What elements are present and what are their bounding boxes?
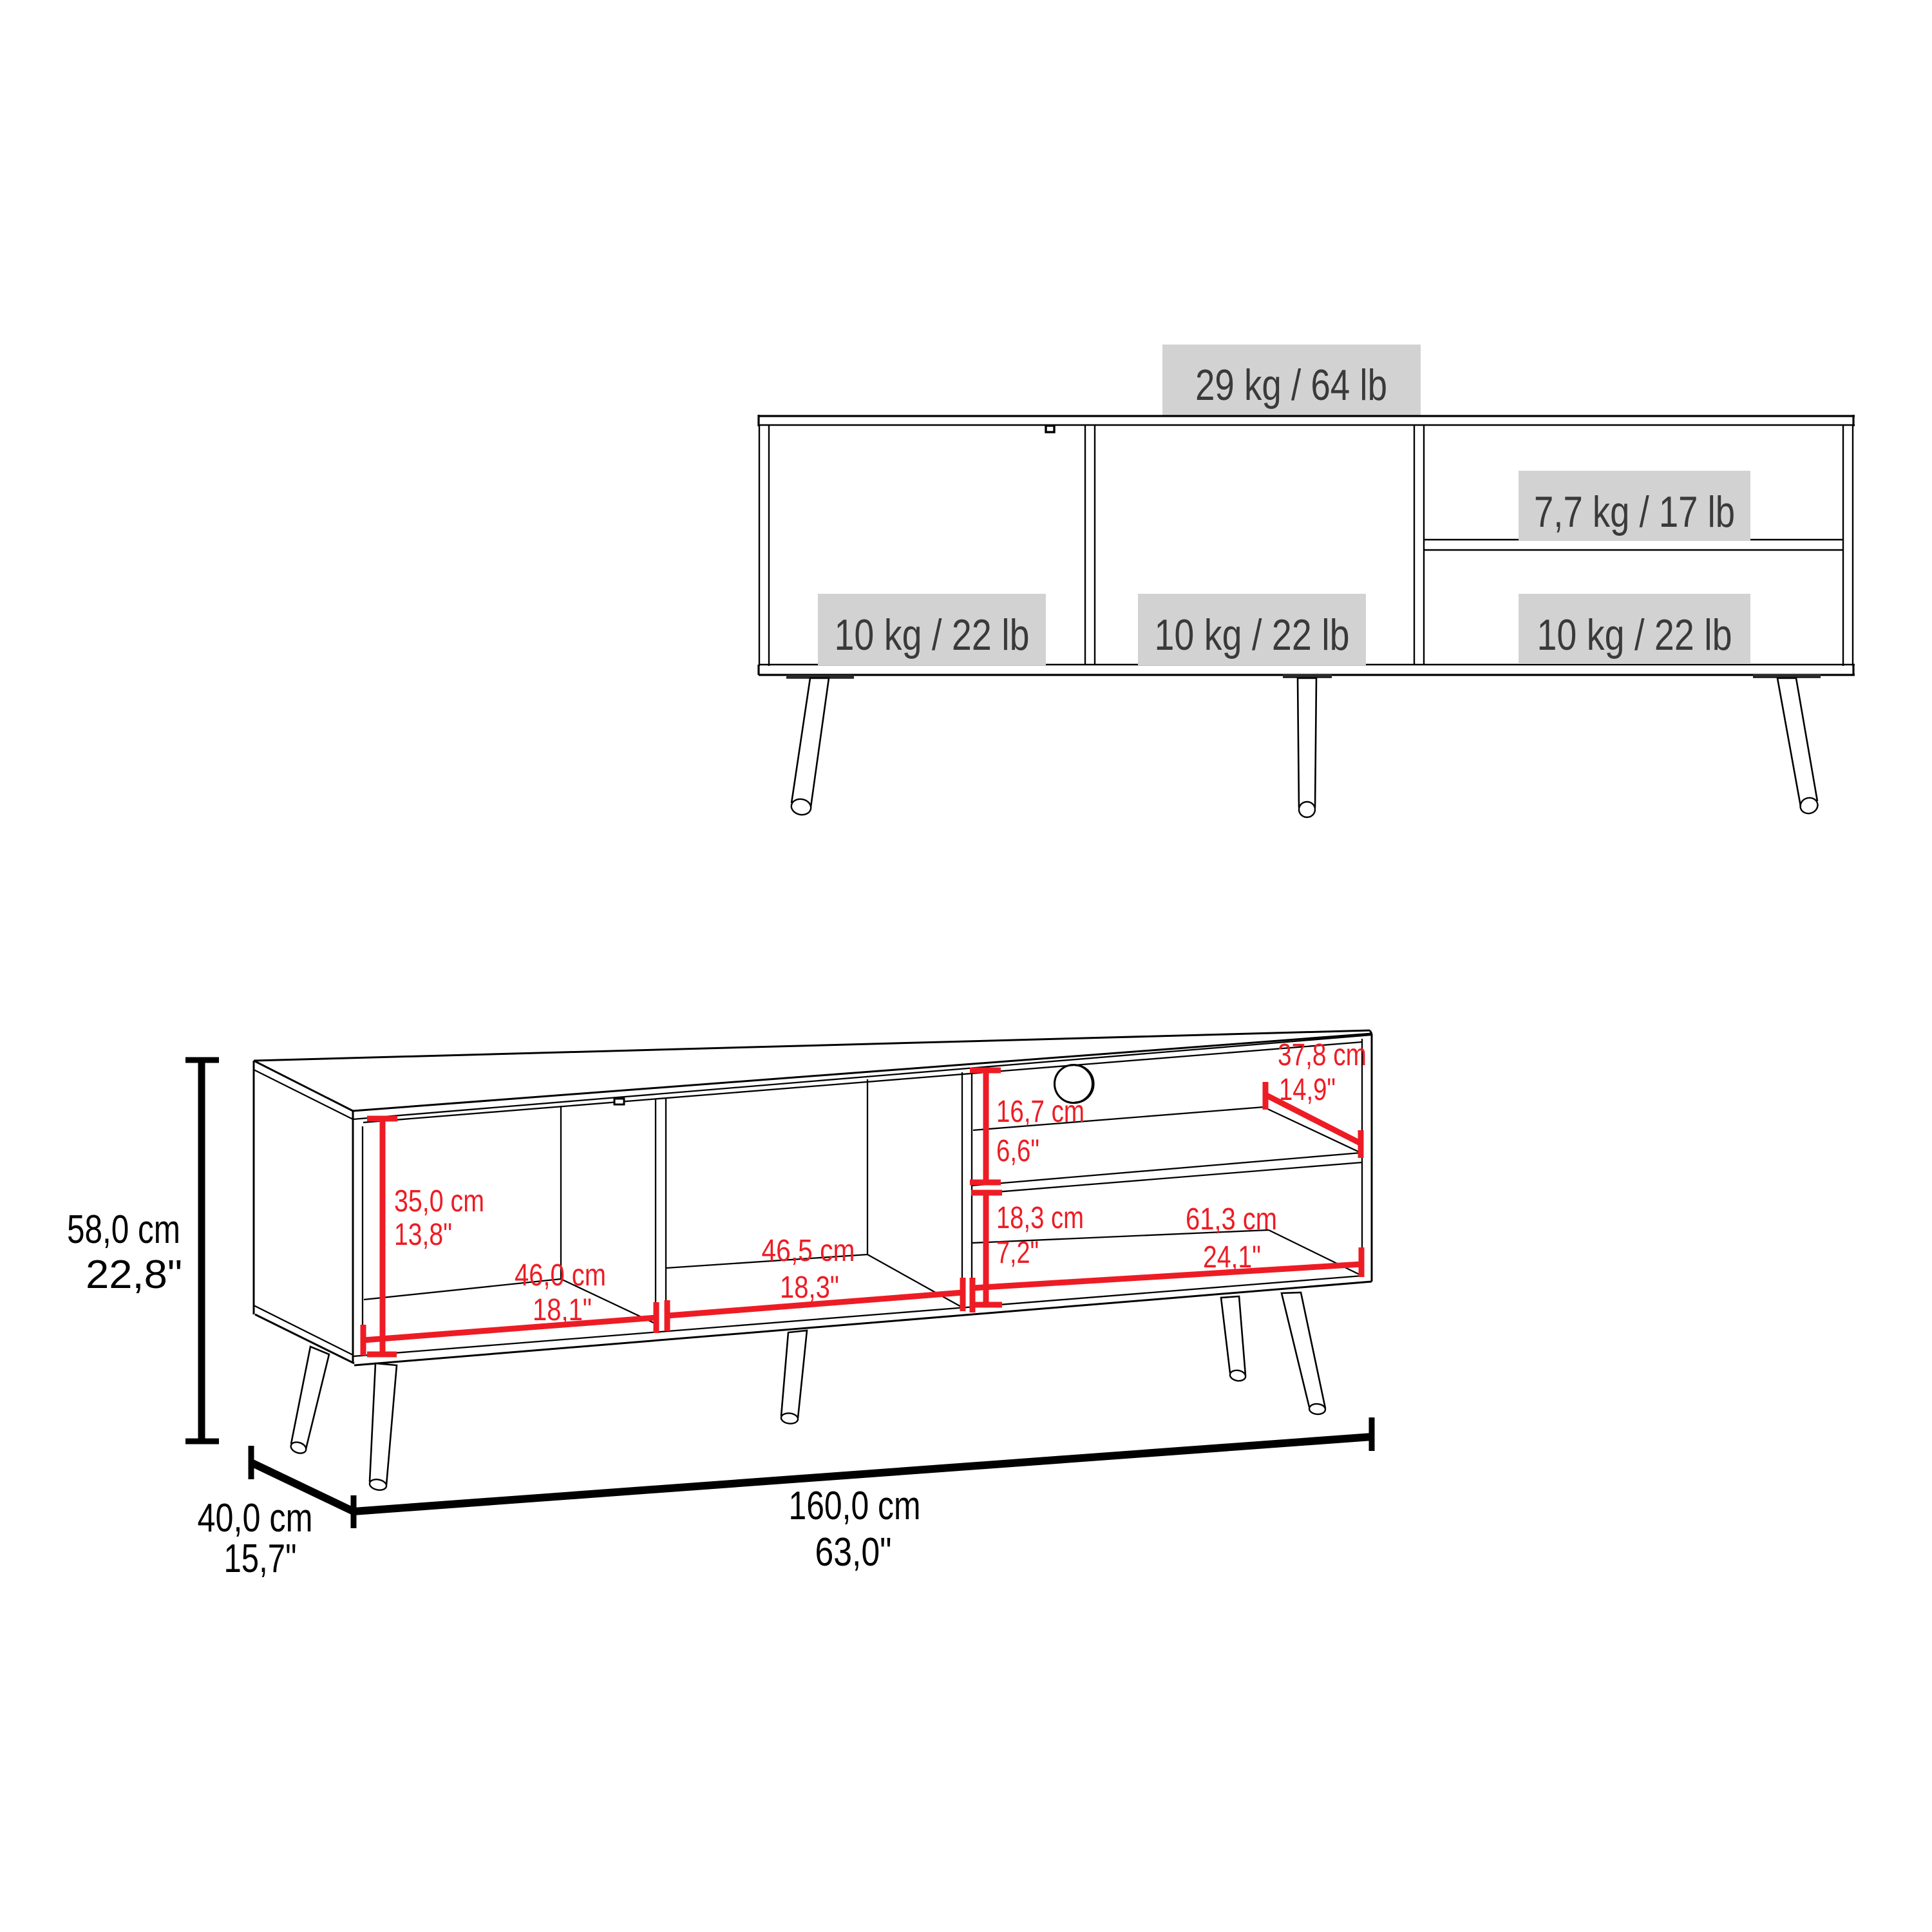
svg-text:14,9": 14,9": [1279, 1073, 1336, 1107]
svg-text:10 kg / 22 lb: 10 kg / 22 lb: [1537, 611, 1732, 659]
svg-text:18,3 cm: 18,3 cm: [996, 1201, 1084, 1235]
svg-text:6,6": 6,6": [996, 1134, 1039, 1168]
svg-text:10 kg / 22 lb: 10 kg / 22 lb: [1155, 611, 1350, 659]
svg-text:40,0 cm: 40,0 cm: [198, 1496, 313, 1540]
svg-text:61,3 cm: 61,3 cm: [1186, 1202, 1277, 1236]
svg-text:15,7": 15,7": [224, 1537, 297, 1581]
svg-text:7,7 kg / 17 lb: 7,7 kg / 17 lb: [1534, 488, 1735, 536]
svg-text:35,0 cm: 35,0 cm: [394, 1184, 484, 1218]
svg-text:22,8": 22,8": [86, 1253, 182, 1297]
svg-text:10 kg / 22 lb: 10 kg / 22 lb: [835, 611, 1030, 659]
svg-text:24,1": 24,1": [1203, 1240, 1261, 1274]
svg-text:46,0 cm: 46,0 cm: [515, 1258, 606, 1293]
svg-text:29 kg / 64 lb: 29 kg / 64 lb: [1195, 361, 1387, 410]
svg-text:160,0 cm: 160,0 cm: [789, 1484, 921, 1528]
svg-text:46,5 cm: 46,5 cm: [762, 1234, 855, 1268]
svg-text:7,2": 7,2": [996, 1236, 1039, 1270]
svg-text:18,1": 18,1": [533, 1293, 592, 1327]
svg-text:63,0": 63,0": [815, 1530, 892, 1575]
svg-text:18,3": 18,3": [780, 1271, 839, 1305]
svg-text:16,7 cm: 16,7 cm: [996, 1095, 1084, 1129]
svg-text:37,8 cm: 37,8 cm: [1278, 1038, 1367, 1072]
svg-text:58,0 cm: 58,0 cm: [67, 1207, 180, 1252]
svg-text:13,8": 13,8": [394, 1218, 452, 1252]
